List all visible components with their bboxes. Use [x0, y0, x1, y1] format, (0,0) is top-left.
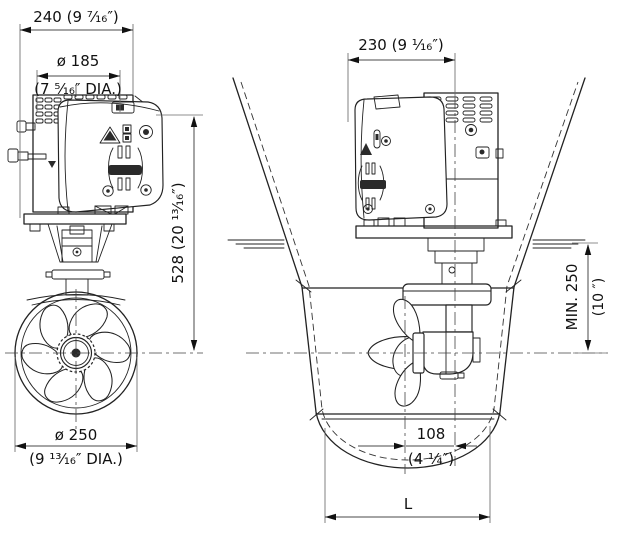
side-view-motor-cover: [355, 95, 447, 220]
dim-prop-offset-label-mm: 108: [417, 425, 446, 443]
dim-prop-offset: 108 (4 ¹⁄₄″): [358, 425, 477, 468]
dim-overall-height-label: 528 (20 ¹³⁄₁₆″): [169, 182, 187, 283]
side-view-motor: [355, 93, 512, 406]
drawing-canvas: 240 (9 ⁷⁄₁₆″) ø 185 (7 ⁵⁄₁₆″ DIA.) 528 (…: [0, 0, 628, 552]
dim-motor-depth-label: 230 (9 ¹⁄₁₆″): [358, 36, 444, 54]
dim-motor-width-label: 240 (9 ⁷⁄₁₆″): [33, 8, 119, 26]
dim-flange-dia-label-inch: (7 ⁵⁄₁₆″ DIA.): [34, 80, 122, 98]
dim-min-submersion-label-mm: MIN. 250: [563, 264, 581, 331]
dim-min-submersion-label-inch: (10 ″): [591, 278, 607, 316]
technical-drawing-svg: 240 (9 ⁷⁄₁₆″) ø 185 (7 ⁵⁄₁₆″ DIA.) 528 (…: [0, 0, 628, 552]
front-view: 240 (9 ⁷⁄₁₆″) ø 185 (7 ⁵⁄₁₆″ DIA.) 528 (…: [5, 8, 203, 468]
side-view-mounting-flange: [356, 220, 512, 284]
cable-gland-lower: [8, 149, 56, 168]
front-view-motor-cover: [58, 100, 163, 212]
dim-propeller-dia-label-mm: ø 250: [55, 426, 98, 444]
dim-prop-offset-label-inch: (4 ¹⁄₄″): [408, 450, 454, 468]
brand-badge-side: [360, 180, 386, 189]
dim-min-submersion: MIN. 250 (10 ″): [563, 243, 607, 353]
dim-tunnel-length-label: L: [404, 495, 413, 513]
dim-flange-dia-label-mm: ø 185: [57, 52, 100, 70]
dim-propeller-dia-label-inch: (9 ¹³⁄₁₆″ DIA.): [29, 450, 123, 468]
waterline-marks: [228, 240, 585, 248]
brand-badge: [108, 165, 142, 175]
dim-tunnel-length: L: [325, 426, 490, 523]
pointer-mark: [48, 161, 56, 168]
front-view-drive-bracket: [24, 206, 128, 295]
side-view: 230 (9 ¹⁄₁₆″) MIN. 250 (10 ″) 108 (4 ¹⁄₄…: [228, 36, 608, 523]
